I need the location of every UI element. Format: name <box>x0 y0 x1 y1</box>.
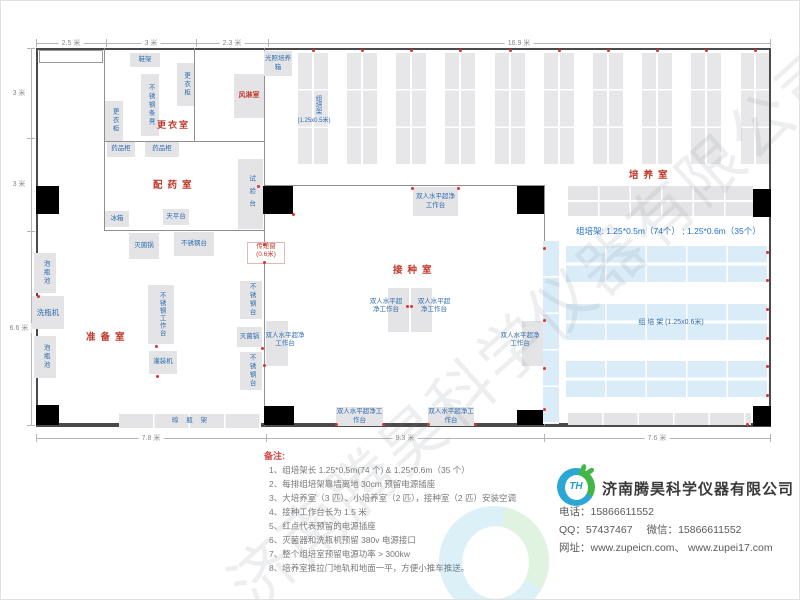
culture-rack-blue-vertical <box>543 241 559 424</box>
power-socket-dot <box>656 49 659 52</box>
website-line: 网址：www.zupeicn.com、 www.zupei17.com <box>559 540 773 555</box>
equipment-filling-machine: 灌装机 <box>149 351 177 374</box>
equipment-bottle-washer: 洗瓶机 <box>32 296 64 329</box>
room-label-changing: 更衣室 <box>157 118 190 131</box>
equipment-fridge: 冰箱 <box>105 211 129 227</box>
dim-bottom-2: 9.3 米 <box>393 433 418 443</box>
room-label-dispensing: 配药室 <box>153 177 197 191</box>
power-socket-dot <box>766 308 769 311</box>
equipment-locker: 更衣柜 <box>105 101 123 141</box>
power-socket-dot <box>335 423 338 426</box>
power-socket-dot <box>406 305 409 308</box>
power-socket-dot <box>543 319 546 322</box>
company-logo: TH <box>557 468 595 506</box>
power-socket-dot <box>766 365 769 368</box>
door-opening <box>517 186 544 214</box>
power-socket-dot <box>766 337 769 340</box>
power-socket-dot <box>427 423 430 426</box>
room-label-prep: 准备室 <box>86 329 130 343</box>
note-item: 2、每排组培架靠墙离地 30cm 预留电源插座 <box>269 478 435 490</box>
power-socket-dot <box>607 49 610 52</box>
dim-top-2: 3 米 <box>142 38 161 48</box>
equipment-sterilizer: 灭菌锅 <box>129 233 159 259</box>
dim-top-1: 2.5 米 <box>59 38 84 48</box>
note-item: 1、组培架长 1.25*0.5m(74 个) & 1.25*0.6m（35 个） <box>269 464 470 476</box>
dim-tick <box>770 39 771 47</box>
power-socket-dot <box>37 295 40 298</box>
door-opening <box>259 186 293 214</box>
pass-window-size: (0.6米) <box>256 251 276 258</box>
door-opening <box>36 186 59 214</box>
wechat-label: 微信： <box>647 524 679 536</box>
power-socket-dot <box>361 49 364 52</box>
pass-through-window: 传递窗 (0.6米) <box>247 242 285 264</box>
door-opening <box>517 410 544 425</box>
dim-tick <box>106 39 107 47</box>
power-socket-dot <box>459 49 462 52</box>
dim-left-1: 3 米 <box>10 88 29 98</box>
power-socket-dot <box>312 49 315 52</box>
dim-left-2: 3 米 <box>10 179 29 189</box>
pass-window-label: 传递窗 <box>256 243 276 250</box>
dimension-line-left <box>31 48 32 426</box>
power-socket-dot <box>766 394 769 397</box>
equipment-sterilizer: 灭菌锅 <box>237 327 262 347</box>
room-label-culture: 培养室 <box>629 167 673 181</box>
culture-rack <box>593 53 623 164</box>
qq-label: QQ： <box>559 524 586 536</box>
power-socket-dot <box>155 345 158 348</box>
watermark-logo <box>439 506 549 600</box>
phone-line: 电话：15866611552 <box>559 504 654 519</box>
door-opening <box>753 189 771 217</box>
culture-rack-horizontal <box>568 413 751 425</box>
culture-rack-blue <box>566 361 769 397</box>
culture-rack <box>544 53 574 164</box>
power-socket-dot <box>746 423 749 426</box>
power-socket-dot <box>705 49 708 52</box>
culture-rack <box>347 53 377 164</box>
dim-bottom-3: 7.6 米 <box>645 433 670 443</box>
wall-inner-h2 <box>104 230 265 231</box>
room-label-inoculation: 接种室 <box>393 262 437 276</box>
culture-rack-blue <box>566 246 769 282</box>
note-item: 4、接种工作台长为 1.5 米 <box>269 506 367 518</box>
power-socket-dot <box>292 213 295 216</box>
culture-rack <box>741 53 769 164</box>
equipment-shoe-rack: 鞋架 <box>130 53 160 67</box>
logo-text: TH <box>557 481 595 492</box>
power-socket-dot <box>457 187 460 190</box>
laminar-bench-label: 双人水平超净工作台 <box>265 332 305 349</box>
phone-label: 电话： <box>559 506 591 518</box>
door-opening <box>753 406 771 426</box>
dim-top-3: 2.3 米 <box>220 38 245 48</box>
dim-bottom-1: 7.8 米 <box>139 433 164 443</box>
equipment-test-bench: 试验台 <box>238 159 263 229</box>
dim-tick <box>27 425 35 426</box>
equipment-laminar-bench: 双人水平超净工作台 <box>428 407 474 426</box>
equipment-laminar-bench: 双人水平超净工作台 <box>413 187 458 216</box>
culture-rack-horizontal <box>568 186 753 216</box>
power-socket-dot <box>543 367 546 370</box>
rack-size-label: (1.25x0.5米) <box>294 118 334 126</box>
equipment-drying-rack-label: 晾 瓶 架 <box>161 417 221 425</box>
dim-left-3: 6.6 米 <box>7 323 32 333</box>
dim-tick <box>36 434 37 442</box>
equipment-soak-pool: 泡瓶池 <box>34 336 56 378</box>
equipment-laminar-bench: 双人水平超净工作台 <box>336 407 383 426</box>
qq-value: 57437467 <box>586 524 633 536</box>
door-opening <box>36 405 59 425</box>
equipment-steel-table: 不锈钢台 <box>174 232 214 256</box>
equipment-soak-pool: 泡瓶池 <box>34 253 56 293</box>
power-socket-dot <box>410 305 413 308</box>
power-socket-dot <box>766 251 769 254</box>
dim-tick <box>27 48 35 49</box>
note-item: 7、整个组培室预留电源功率 > 300kw <box>269 548 410 560</box>
power-socket-dot <box>263 243 266 246</box>
power-socket-dot <box>543 408 546 411</box>
note-item: 5、红点代表预留的电源插座 <box>269 520 376 532</box>
power-socket-dot <box>257 185 260 188</box>
culture-rack <box>445 53 475 164</box>
power-socket-dot <box>558 49 561 52</box>
power-socket-dot <box>509 49 512 52</box>
laminar-bench-label: 双人水平超净工作台 <box>367 298 405 315</box>
wechat-value: 15866611552 <box>678 524 741 536</box>
power-socket-dot <box>261 347 264 350</box>
company-name: 济南腾昊科学仪器有限公司 <box>602 478 794 499</box>
power-socket-dot <box>754 49 757 52</box>
notes-title: 备注: <box>264 449 285 462</box>
power-socket-dot <box>474 423 477 426</box>
equipment-steel-table: 不锈钢台 <box>240 352 262 390</box>
dim-tick <box>544 434 545 442</box>
window-rect <box>39 50 103 63</box>
culture-rack <box>495 53 525 164</box>
web-value: www.zupeicn.com、 www.zupei17.com <box>591 542 773 554</box>
power-socket-dot <box>263 364 266 367</box>
dim-tick <box>196 39 197 47</box>
power-socket-dot <box>156 375 159 378</box>
power-socket-dot <box>543 247 546 250</box>
wall-inner-v3 <box>264 48 265 426</box>
web-label: 网址： <box>559 542 591 554</box>
floor-plan-page: 2.5 米 3 米 2.3 米 16.9 米 3 米 3 米 6.6 米 7.8… <box>0 0 800 600</box>
power-socket-dot <box>766 279 769 282</box>
dim-tick <box>266 434 267 442</box>
dim-tick <box>36 39 37 47</box>
dim-tick <box>27 231 35 232</box>
equipment-balance-table: 天平台 <box>163 209 189 225</box>
laminar-bench-label: 双人水平超净工作台 <box>499 332 541 349</box>
dim-tick <box>268 39 269 47</box>
wall-outer-top <box>36 48 771 50</box>
dim-tick <box>27 138 35 139</box>
dim-tick <box>770 434 771 442</box>
equipment-steel-table: 不锈钢台 <box>240 281 262 319</box>
equipment-medicine-cabinet: 药品柜 <box>145 142 179 157</box>
note-item: 8、培养室推拉门地轨和地面一平，方便小推车推送。 <box>269 562 469 574</box>
logo-swirl <box>439 506 549 600</box>
qq-wechat-line: QQ：57437467微信：15866611552 <box>559 522 742 537</box>
power-socket-dot <box>263 261 266 264</box>
equipment-locker: 更衣柜 <box>177 63 194 106</box>
power-socket-dot <box>411 187 414 190</box>
equipment-medicine-cabinet: 药品柜 <box>107 142 135 157</box>
phone-value: 15866611552 <box>591 506 654 518</box>
wall-inner-v2 <box>194 48 195 141</box>
equipment-light-incubator: 光照培养箱 <box>264 51 292 76</box>
culture-rack <box>642 53 672 164</box>
wall-inner-h3 <box>264 185 545 186</box>
note-item: 3、大培养室（3 匹）、小培养室（2 匹），接种室（2 匹）安装空调 <box>269 492 516 504</box>
rack-summary-text: 组培架: 1.25*0.5m（74个） ; 1.25*0.6m（35个） <box>576 226 776 237</box>
dim-top-4: 16.9 米 <box>505 38 534 48</box>
laminar-bench-label: 双人水平超净工作台 <box>415 298 453 315</box>
rack-label: 组培架 <box>305 89 321 121</box>
door-opening <box>264 406 294 425</box>
culture-rack <box>396 53 426 164</box>
equipment-steel-worktable: 不锈钢工作台 <box>148 285 174 344</box>
note-item: 6、灭菌器和洗瓶机预留 380v 电源接口 <box>269 534 416 546</box>
blue-rack-label: 组 培 架 (1.25x0.6米) <box>601 318 741 327</box>
culture-rack <box>691 53 721 164</box>
logo-center <box>462 526 529 599</box>
power-socket-dot <box>382 423 385 426</box>
power-socket-dot <box>410 49 413 52</box>
room-air-shower: 风淋室 <box>234 74 264 118</box>
